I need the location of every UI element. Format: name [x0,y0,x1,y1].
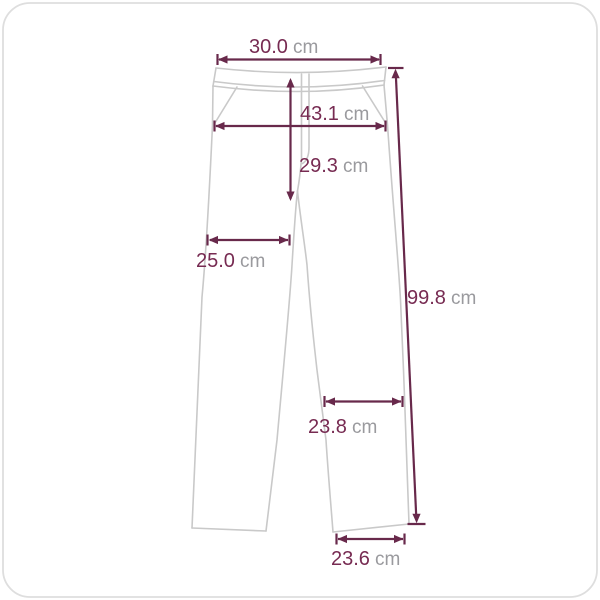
waistband-right-edge [384,67,386,85]
rise-measurement-label: 29.3cm [299,156,368,177]
left-outer-seam [192,86,213,528]
rise-unit: cm [343,156,368,177]
waistband-seam-line [214,81,385,88]
right-leg-hem [333,524,409,532]
knee-value: 23.8 [308,416,347,438]
left-pocket-line [216,87,238,122]
waistband-left-edge [213,68,216,86]
dimension-lines [208,54,426,545]
hem-value: 23.6 [331,548,370,570]
knee-measurement-label: 23.8cm [308,417,377,438]
pants-outline [192,67,409,532]
hip-unit: cm [344,104,369,125]
knee-unit: cm [352,417,377,438]
length-top-arrowhead [392,69,400,79]
right-outer-seam [384,85,409,524]
dimension-arrowheads [209,55,421,543]
thigh-right-arrowhead [279,236,289,244]
hip-right-arrowhead [376,122,386,130]
waistband-bottom-edge [213,85,384,92]
waist-value: 30.0 [249,36,288,58]
length-value: 99.8 [407,287,446,309]
rise-top-arrowhead [286,78,294,88]
waist-unit: cm [293,37,318,58]
length-measurement-label: 99.8cm [407,288,476,309]
hip-value: 43.1 [300,103,339,125]
hem-unit: cm [375,549,400,570]
thigh-unit: cm [240,251,265,272]
rise-bottom-arrowhead [286,192,294,202]
rise-value: 29.3 [299,155,338,177]
thigh-measurement-label: 25.0cm [196,251,265,272]
knee-right-arrowhead [392,397,402,405]
waist-left-arrowhead [218,55,228,63]
pants-size-diagram: 30.0cm 43.1cm 29.3cm 25.0cm 99.8cm 23.8c… [0,0,600,600]
thigh-left-arrowhead [209,236,219,244]
hip-left-arrowhead [215,122,225,130]
waistband-top-edge [216,67,386,73]
length-unit: cm [451,288,476,309]
left-leg-hem [192,528,266,531]
right-inner-seam [298,191,334,532]
length-bottom-arrowhead [412,514,420,523]
knee-left-arrowhead [326,397,336,405]
hip-measurement-label: 43.1cm [300,104,369,125]
diagram-canvas [0,0,600,600]
thigh-value: 25.0 [196,250,235,272]
waist-right-arrowhead [371,55,381,63]
hem-left-arrowhead [338,535,348,543]
hem-right-arrowhead [394,535,404,543]
waist-measurement-label: 30.0cm [249,37,318,58]
hem-measurement-label: 23.6cm [331,549,400,570]
